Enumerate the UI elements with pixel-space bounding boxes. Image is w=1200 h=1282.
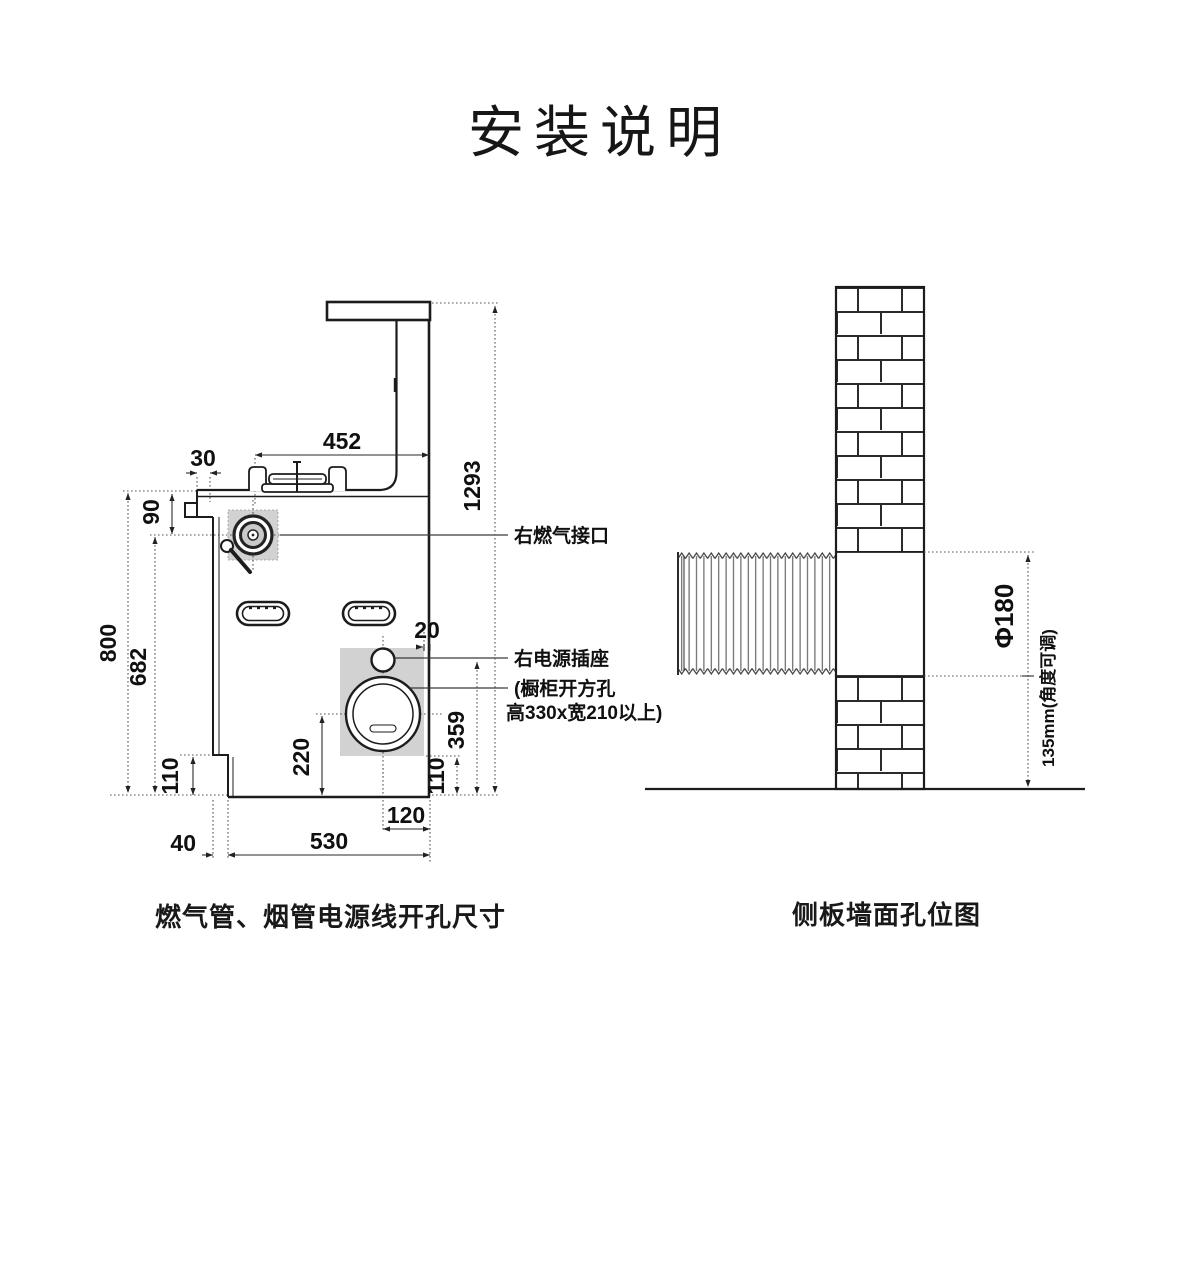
dim-adjustable-length: 135mm(角度可调): [1038, 629, 1058, 767]
left-bracket: [185, 503, 197, 517]
hood-top-bar: [327, 302, 430, 320]
left-diagram: 右燃气接口 右电源插座 (橱柜开方孔 高330x宽210以上) 452 30 1…: [95, 302, 662, 862]
power-socket-label: 右电源插座: [513, 647, 609, 670]
dim-110-left: 110: [157, 757, 183, 794]
dim-359: 359: [443, 711, 469, 749]
counter-left-face: [197, 490, 213, 517]
brick-wall: [836, 287, 924, 789]
gas-connector-label: 右燃气接口: [513, 524, 609, 547]
cabinet-hole-label-line1: (橱柜开方孔: [514, 677, 615, 700]
dim-hole-diameter: Φ180: [989, 584, 1019, 649]
dim-800: 800: [95, 624, 121, 662]
right-dimensions: Φ180 135mm(角度可调): [924, 552, 1058, 787]
cabinet-hole-label-line2: 高330x宽210以上): [506, 701, 662, 724]
dim-1293: 1293: [459, 460, 485, 511]
left-figure-caption: 燃气管、烟管电源线开孔尺寸: [155, 897, 506, 934]
dim-30: 30: [190, 445, 216, 471]
right-diagram: Φ180 135mm(角度可调): [645, 287, 1085, 789]
left-dimensions: 452 30 1293 800 682 90 110: [95, 306, 495, 856]
duct-logo-pill: [370, 725, 396, 732]
dim-120: 120: [387, 802, 425, 828]
hob-burner: [249, 462, 346, 492]
dim-20: 20: [414, 617, 440, 643]
dim-452: 452: [323, 428, 361, 454]
dim-682: 682: [125, 648, 151, 686]
body-left-edge: [213, 517, 228, 797]
callouts: 右燃气接口 右电源插座 (橱柜开方孔 高330x宽210以上): [280, 524, 662, 724]
dim-220: 220: [288, 738, 314, 776]
page: 安装说明: [0, 0, 1200, 1282]
gas-connector-icon: [234, 516, 272, 554]
smoke-duct-hole-outer: [346, 677, 420, 751]
dim-110-right: 110: [423, 757, 449, 794]
flex-duct: [678, 552, 836, 675]
hood-face-notch: [394, 378, 397, 392]
power-socket-hole: [372, 649, 395, 672]
dim-530: 530: [310, 828, 348, 854]
dim-90: 90: [138, 499, 164, 525]
dim-40: 40: [170, 830, 196, 856]
installation-drawing: 右燃气接口 右电源插座 (橱柜开方孔 高330x宽210以上) 452 30 1…: [0, 0, 1200, 1282]
vent-slots: [237, 602, 395, 625]
right-figure-caption: 侧板墙面孔位图: [792, 895, 981, 932]
